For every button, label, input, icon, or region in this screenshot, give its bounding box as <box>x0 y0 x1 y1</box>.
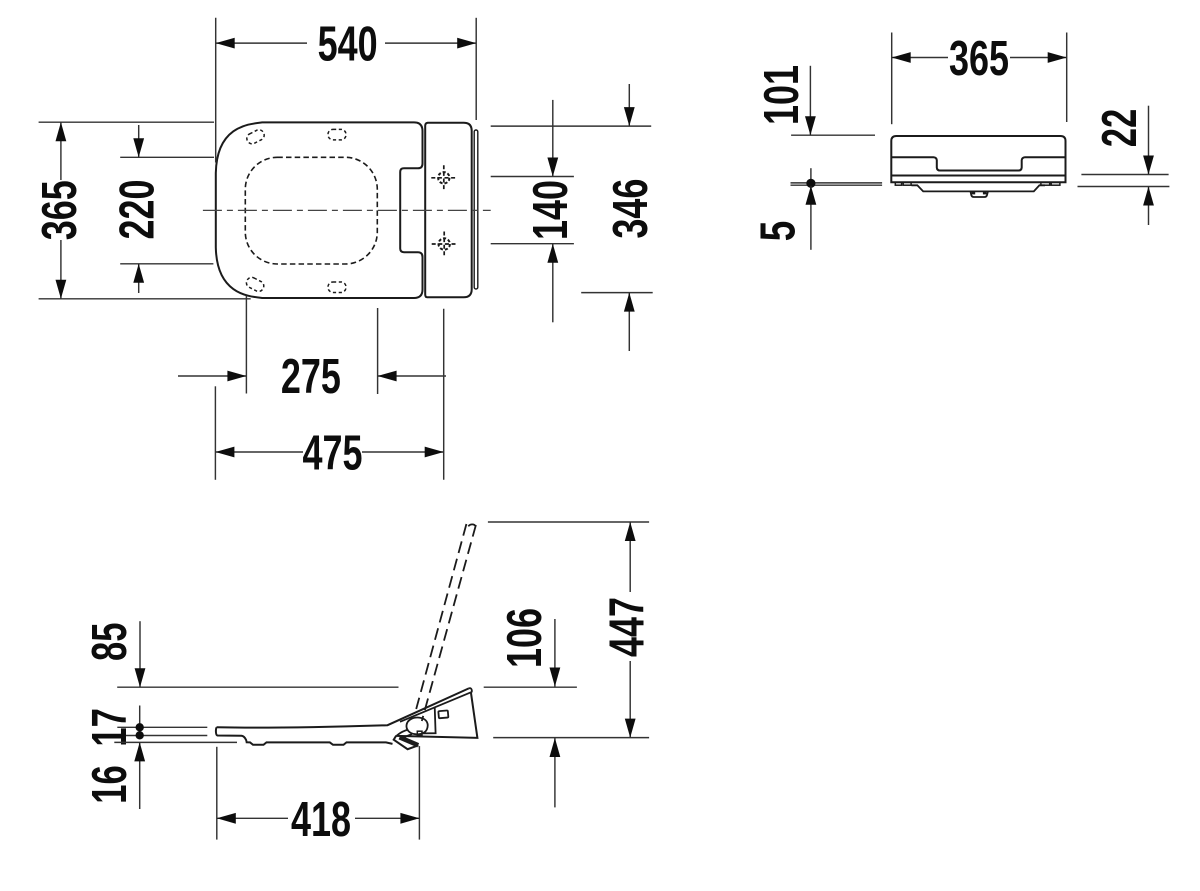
svg-text:16: 16 <box>82 765 137 804</box>
svg-text:346: 346 <box>603 179 658 239</box>
svg-text:365: 365 <box>32 180 87 240</box>
svg-text:365: 365 <box>949 31 1009 86</box>
svg-text:85: 85 <box>82 622 137 661</box>
svg-text:140: 140 <box>523 180 578 240</box>
svg-text:5: 5 <box>751 221 806 242</box>
svg-text:22: 22 <box>1092 109 1147 148</box>
svg-text:101: 101 <box>754 65 809 125</box>
svg-text:275: 275 <box>281 349 341 404</box>
svg-text:106: 106 <box>497 608 552 668</box>
svg-text:447: 447 <box>600 597 655 657</box>
svg-text:418: 418 <box>291 792 351 847</box>
svg-text:17: 17 <box>82 708 137 747</box>
svg-text:540: 540 <box>318 17 378 72</box>
svg-text:220: 220 <box>110 180 165 240</box>
svg-text:475: 475 <box>303 425 363 480</box>
